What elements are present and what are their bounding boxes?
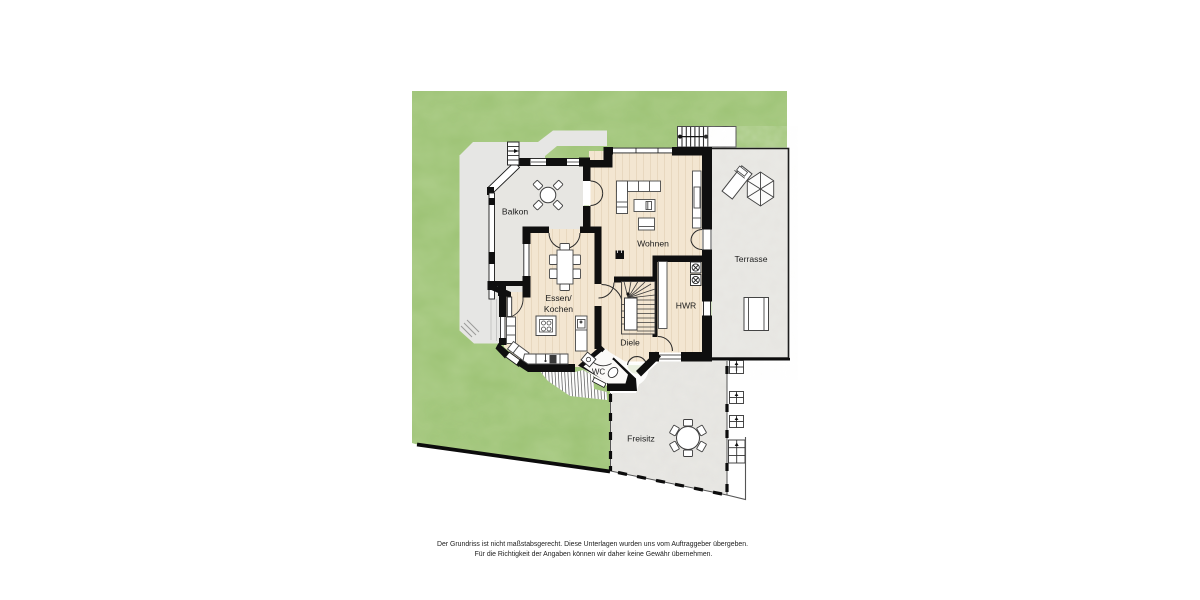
svg-text:Der Grundriss ist nicht maßsta: Der Grundriss ist nicht maßstabsgerecht.… [437,541,748,548]
svg-text:WC: WC [592,368,606,377]
svg-text:Wohnen: Wohnen [637,239,669,249]
svg-text:Kochen: Kochen [544,304,573,314]
svg-text:Diele: Diele [620,338,640,348]
svg-text:Balkon: Balkon [502,207,528,217]
svg-text:Freisitz: Freisitz [627,434,655,444]
svg-text:Essen/: Essen/ [545,293,572,303]
svg-text:Terrasse: Terrasse [735,254,768,264]
svg-text:HWR: HWR [676,301,697,311]
svg-text:Für die Richtigkeit der Angabe: Für die Richtigkeit der Angaben können w… [475,551,713,558]
